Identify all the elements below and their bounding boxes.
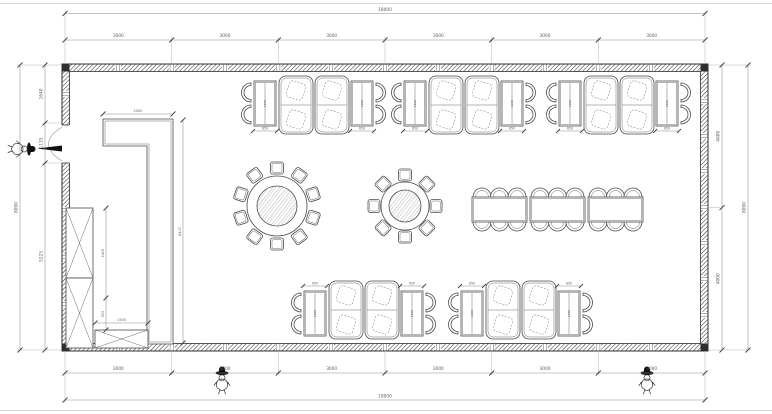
booth-group-top-2: 12006501200650 [392, 76, 536, 134]
dim-label: 3000 [433, 33, 444, 39]
dim-label: 3000 [113, 33, 124, 39]
booth-table-width-label: 650 [359, 127, 365, 131]
dim-label: 2425 [101, 249, 105, 258]
low-cabinet [95, 330, 148, 348]
booth-table-length-label: 1200 [510, 100, 514, 108]
booth-table-width-label: 650 [412, 127, 418, 131]
round-table-10-seats [233, 162, 321, 250]
booth-table-width-label: 650 [262, 127, 268, 131]
dim-label: 1135 [39, 137, 45, 148]
booth-table-length-label: 1200 [263, 100, 267, 108]
round-table-8-seats [368, 169, 442, 243]
banquet-table-row [472, 188, 643, 231]
booth-group-top-3: 12006501200650 [547, 76, 691, 134]
booth-table-length-label: 1200 [313, 310, 317, 318]
dim-label: 4000 [716, 273, 722, 284]
booth-table-length-label: 1200 [360, 100, 364, 108]
wall-cabinets [66, 208, 93, 348]
dim-label: 900 [101, 311, 105, 317]
dim-label: 1640 [39, 88, 45, 99]
booth-table-width-label: 650 [312, 282, 318, 286]
booth-table-length-label: 1200 [470, 310, 474, 318]
dim-label: 2000 [134, 109, 143, 113]
dim-label: 18000 [378, 7, 392, 13]
booth-table-length-label: 1200 [567, 310, 571, 318]
dim-label: 1500 [117, 318, 126, 322]
dim-label: 3000 [220, 366, 231, 372]
booth-table-length-label: 1200 [413, 100, 417, 108]
dim-label: 5225 [39, 251, 45, 262]
booth-table-width-label: 650 [567, 127, 573, 131]
floor-plan-drawing: 1200650120065012006501200650120065012006… [0, 0, 772, 414]
booth-table-width-label: 650 [409, 282, 415, 286]
booth-table-width-label: 650 [469, 282, 475, 286]
booth-table-width-label: 650 [509, 127, 515, 131]
dim-label: 8000 [14, 202, 20, 213]
dim-label: 3000 [326, 366, 337, 372]
cad-floor-plan: 1200650120065012006501200650120065012006… [0, 0, 772, 414]
service-counter [103, 119, 173, 344]
dim-label: 4000 [716, 131, 722, 142]
booth-table-length-label: 1200 [568, 100, 572, 108]
dim-label: 3000 [540, 366, 551, 372]
dim-label: 6400 [178, 227, 182, 236]
booth-group-bottom-1: 12006501200650 [292, 281, 436, 339]
dim-label: 3000 [646, 366, 657, 372]
dim-label: 18000 [378, 394, 392, 400]
dim-label: 3000 [220, 33, 231, 39]
booth-table-length-label: 1200 [665, 100, 669, 108]
right-dimensions: 400040008000 [716, 63, 751, 353]
door-swing-arc [49, 127, 63, 161]
dim-label: 3000 [433, 366, 444, 372]
booth-group-bottom-2: 12006501200650 [449, 281, 593, 339]
booth-group-top-1: 12006501200650 [242, 76, 386, 134]
left-dimensions: 1640113552258000 [14, 63, 48, 353]
booth-table-length-label: 1200 [410, 310, 414, 318]
booth-table-width-label: 650 [566, 282, 572, 286]
left-entry-figure [8, 141, 36, 157]
dim-label: 3000 [646, 33, 657, 39]
booth-table-width-label: 650 [664, 127, 670, 131]
dim-label: 8000 [742, 202, 748, 213]
dim-label: 3000 [113, 366, 124, 372]
dim-label: 3000 [326, 33, 337, 39]
dim-label: 3000 [540, 33, 551, 39]
